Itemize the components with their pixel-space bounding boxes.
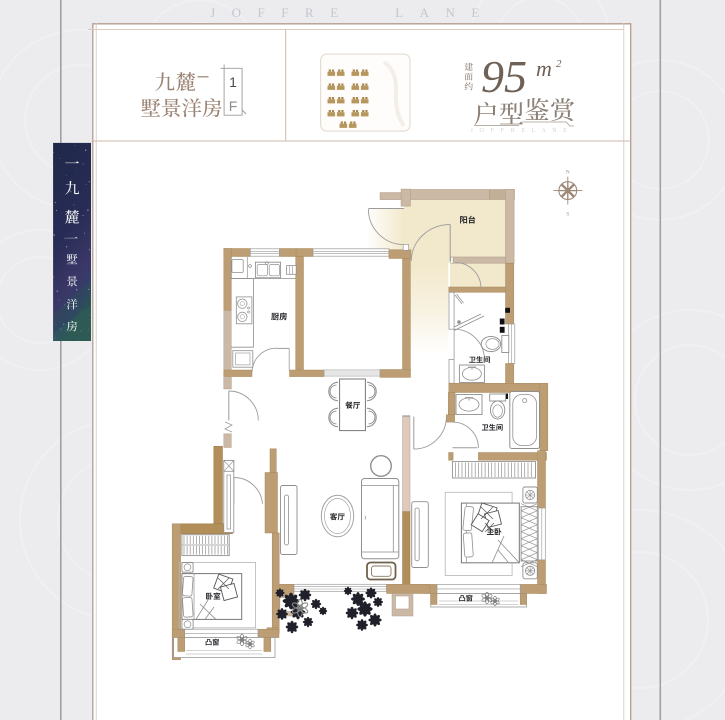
svg-text:95: 95 [481,51,527,102]
svg-text:J O F F R E L A N E: J O F F R E L A N E [470,128,569,134]
svg-text:m: m [536,56,552,81]
svg-text:2: 2 [556,58,562,70]
svg-text:F: F [229,98,238,114]
svg-text:1: 1 [229,74,237,90]
svg-text:N: N [566,170,570,176]
svg-text:S: S [566,212,569,218]
svg-text:JOFFRE LANE: JOFFRE LANE [210,5,496,20]
